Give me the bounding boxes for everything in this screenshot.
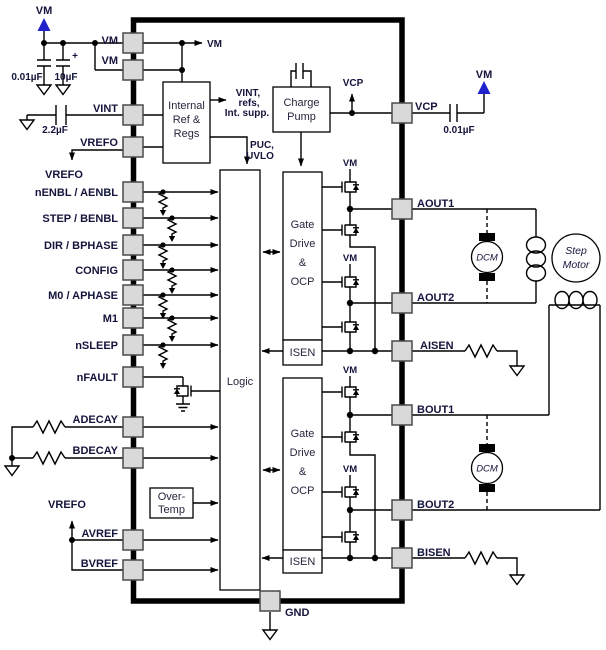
- pin-config: [123, 260, 143, 280]
- vm-net-label: VM: [36, 5, 53, 17]
- mosfet-icon: [336, 273, 359, 291]
- signal-ground-icon: [176, 404, 190, 411]
- int-ref-out-label: Int. supp.: [225, 108, 270, 119]
- mosfet-icon: [336, 221, 359, 239]
- pin-gnd: [260, 591, 280, 611]
- cap-label-22uf: 2.2µF: [42, 125, 68, 136]
- ground-icon: [263, 630, 277, 640]
- mosfet-icon: [336, 428, 359, 446]
- pin-step-benbl: [123, 208, 143, 228]
- pin-label-vcp: VCP: [415, 101, 438, 113]
- pin-label-bout2: BOUT2: [417, 499, 454, 511]
- cap-label-10uf: 10µF: [55, 72, 78, 83]
- pin-label-vrefo: VREFO: [80, 137, 118, 149]
- mosfet-icon: [336, 383, 359, 401]
- cap-label-vcp: 0.01µF: [443, 125, 474, 136]
- vm-internal-label: VM: [207, 39, 222, 50]
- pin-label-bout1: BOUT1: [417, 404, 454, 416]
- gate-drive-a-label: &: [299, 257, 307, 269]
- pin-vcp: [392, 103, 412, 123]
- pin-label-vm-1: VM: [102, 35, 119, 47]
- pin-vm-1: [123, 33, 143, 53]
- winding-b-icon: [555, 292, 597, 309]
- pin-m0-aphase: [123, 285, 143, 305]
- pin-label-aout1: AOUT1: [417, 198, 454, 210]
- winding-a-icon: [527, 237, 546, 281]
- resistor-icon: [33, 452, 65, 464]
- pin-label-dir-bphase: DIR / BPHASE: [44, 240, 118, 252]
- pin-label-step-benbl: STEP / BENBL: [42, 213, 118, 225]
- pin-bout1: [392, 405, 412, 425]
- net-labels: VM VM VM VCP VREFO VREFO VM VM VM VM VIN…: [36, 5, 493, 511]
- pin-label-config: CONFIG: [75, 265, 118, 277]
- pin-label-m1: M1: [103, 313, 118, 325]
- pulldown-resistor-icon: [168, 218, 176, 242]
- charge-pump-label: Charge: [283, 97, 319, 109]
- ground-icon: [510, 575, 524, 585]
- gate-drive-b-label: OCP: [291, 485, 315, 497]
- pin-nenbl-aenbl: [123, 182, 143, 202]
- pin-label-m0-aphase: M0 / APHASE: [48, 290, 118, 302]
- pin-label-avref: AVREF: [82, 528, 119, 540]
- resistor-icon: [465, 345, 497, 357]
- motor-symbols: Step Motor: [472, 233, 601, 492]
- pin-aout1: [392, 199, 412, 219]
- pin-label-aout2: AOUT2: [417, 292, 454, 304]
- pin-label-gnd: GND: [285, 607, 310, 619]
- internal-ref-label: Regs: [174, 128, 200, 140]
- pin-label-adecay: ADECAY: [73, 414, 119, 426]
- pin-bout2: [392, 500, 412, 520]
- pin-label-bdecay: BDECAY: [73, 445, 119, 457]
- internal-ref-label: Ref &: [173, 114, 201, 126]
- over-temp-label: Over-: [158, 491, 186, 503]
- gate-drive-a-label: OCP: [291, 276, 315, 288]
- pin-bdecay: [123, 448, 143, 468]
- pin-bisen: [392, 548, 412, 568]
- dc-motor-a: [472, 233, 503, 281]
- pin-label-bvref: BVREF: [81, 558, 119, 570]
- ground-icon: [37, 85, 51, 95]
- isen-b-label: ISEN: [290, 556, 316, 568]
- vcp-net-label: VCP: [343, 78, 364, 89]
- step-motor-label: Step: [565, 245, 587, 257]
- vrefo-net-label: VREFO: [48, 499, 86, 511]
- pin-bvref: [123, 560, 143, 580]
- gate-drive-b-label: &: [299, 466, 307, 478]
- internal-ref-label: Internal: [168, 100, 205, 112]
- resistor-icon: [465, 552, 497, 564]
- vm-arrow-icon: [478, 81, 491, 94]
- pin-aout2: [392, 293, 412, 313]
- gate-drive-a-block: [283, 172, 322, 340]
- resistor-icon: [33, 421, 65, 433]
- cap-label-001uf: 0.01µF: [11, 72, 42, 83]
- gate-drive-a-label: Drive: [290, 238, 316, 250]
- vrefo-net-label: VREFO: [45, 169, 83, 181]
- mosfet-bridge-icons: [174, 178, 359, 546]
- vm-arrow-icon: [38, 18, 51, 31]
- mosfet-icon: [336, 318, 359, 336]
- gate-drive-b-label: Gate: [291, 428, 315, 440]
- pin-adecay: [123, 417, 143, 437]
- vm-rail-label: VM: [343, 158, 357, 169]
- dc-motor-b: [472, 444, 503, 492]
- vm-rail-label: VM: [343, 464, 357, 475]
- pin-nfault: [123, 367, 143, 387]
- nfault-mosfet-icon: [174, 382, 197, 400]
- ground-icon: [56, 85, 70, 95]
- functional-blocks: Internal Ref & Regs Charge Pump Logic Ga…: [150, 82, 330, 590]
- pin-label-bisen: BISEN: [417, 547, 451, 559]
- step-motor-circle: [552, 234, 600, 282]
- puc-uvlo-label: UVLO: [246, 151, 274, 162]
- gate-drive-a-label: Gate: [291, 219, 315, 231]
- pulldown-resistor-icon: [159, 245, 167, 269]
- pulldown-resistor-icon: [159, 295, 167, 319]
- vm-rail-label: VM: [343, 365, 357, 376]
- pin-label-nfault: nFAULT: [77, 372, 119, 384]
- charge-pump-label: Pump: [287, 111, 316, 123]
- pulldown-resistor-icon: [168, 318, 176, 342]
- pulldown-resistor-icon: [168, 270, 176, 294]
- gate-drive-b-block: [283, 378, 322, 550]
- ground-icon: [510, 366, 524, 376]
- pin-label-vint: VINT: [93, 103, 118, 115]
- puc-uvlo-label: PUC,: [250, 140, 274, 151]
- plus-sign: +: [72, 51, 78, 62]
- pin-label-nsleep: nSLEEP: [75, 340, 118, 352]
- pin-vm-2: [123, 60, 143, 80]
- vm-net-label: VM: [476, 69, 493, 81]
- step-motor-label: Motor: [563, 259, 590, 271]
- pin-m1: [123, 308, 143, 328]
- logic-label: Logic: [227, 376, 254, 388]
- diagram-canvas: DCM: [0, 0, 606, 645]
- pin-label-vm-2: VM: [102, 55, 119, 67]
- gate-drive-b-label: Drive: [290, 447, 316, 459]
- over-temp-label: Temp: [158, 504, 185, 516]
- pin-vint: [123, 105, 143, 125]
- charge-pump-block: [273, 87, 330, 132]
- ground-icon: [20, 120, 34, 130]
- pin-dir-bphase: [123, 235, 143, 255]
- pin-label-aisen: AISEN: [420, 340, 454, 352]
- mosfet-icon: [336, 178, 359, 196]
- pin-vrefo: [123, 137, 143, 157]
- vm-rail-label: VM: [343, 253, 357, 264]
- pulldown-resistor-icon: [159, 192, 167, 216]
- mosfet-icon: [336, 483, 359, 501]
- isen-a-label: ISEN: [290, 347, 316, 359]
- pin-avref: [123, 530, 143, 550]
- pulldown-resistor-icon: [159, 345, 167, 369]
- ground-icon: [5, 466, 19, 476]
- pin-nsleep: [123, 335, 143, 355]
- block-diagram: DCM: [0, 0, 606, 645]
- pin-aisen: [392, 341, 412, 361]
- mosfet-icon: [336, 528, 359, 546]
- pin-label-nenbl-aenbl: nENBL / AENBL: [35, 187, 118, 199]
